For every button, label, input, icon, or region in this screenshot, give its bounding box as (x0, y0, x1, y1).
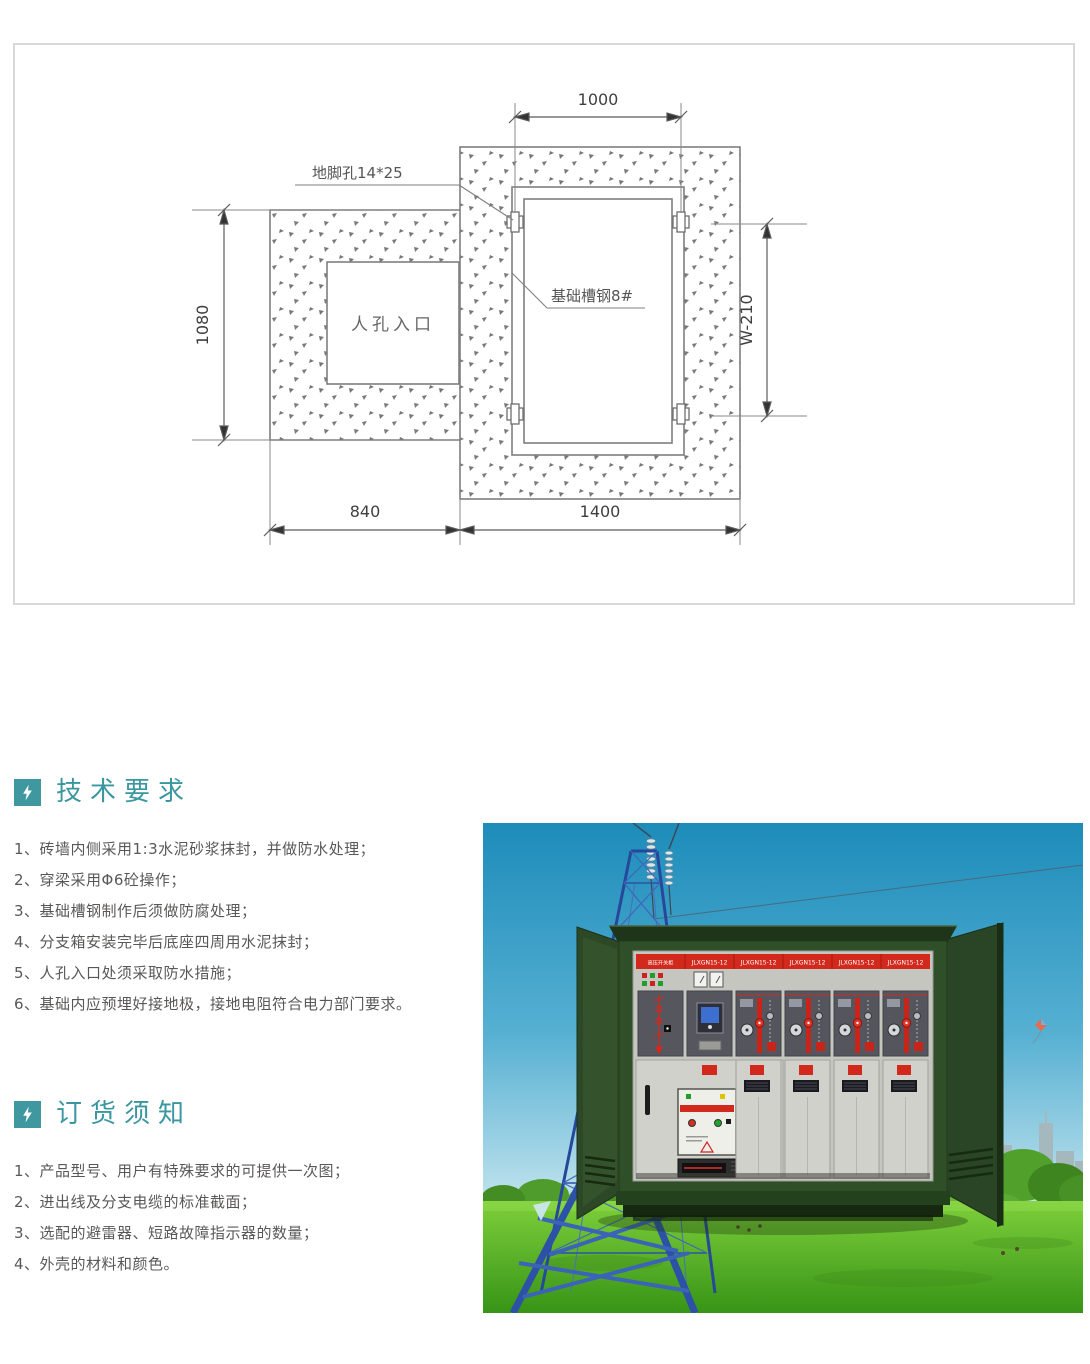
dim-top: 1000 (578, 90, 619, 109)
tech-requirements-section: 技术要求 1、砖墙内侧采用1:3水泥砂浆抹封，并做防水处理； 2、穿梁采用Φ6砼… (14, 778, 484, 1020)
cabinet-base (616, 1191, 950, 1205)
cabinet-right-door (941, 923, 1003, 1227)
panel-label: JLXGN15-12 (691, 960, 728, 967)
list-item: 2、穿梁采用Φ6砼操作； (14, 865, 484, 896)
dim-left: 1080 (193, 305, 212, 346)
list-item: 3、基础槽钢制作后须做防腐处理； (14, 896, 484, 927)
list-item: 5、人孔入口处须采取防水措施； (14, 958, 484, 989)
single-line-diagram (638, 991, 683, 1056)
list-item: 6、基础内应预埋好接地极，接地电阻符合电力部门要求。 (14, 989, 484, 1020)
foundation-plan-drawing: 1000 1080 W-210 840 1400 地脚孔14*25 基础槽钢8#… (15, 45, 1073, 603)
tech-requirements-list: 1、砖墙内侧采用1:3水泥砂浆抹封，并做防水处理； 2、穿梁采用Φ6砼操作； 3… (14, 834, 484, 1020)
dim-right: W-210 (737, 294, 756, 345)
dim-bottom-left: 840 (350, 502, 381, 521)
manhole-label: 人孔入口 (351, 315, 435, 335)
channel-steel-label: 基础槽钢8# (551, 287, 633, 305)
anchor-hole-label: 地脚孔14*25 (312, 164, 403, 182)
panel-label: JLXGN15-12 (838, 960, 875, 967)
list-item: 4、分支箱安装完毕后底座四周用水泥抹封； (14, 927, 484, 958)
cabinet-left-door (577, 927, 623, 1219)
foundation-plan-panel: 1000 1080 W-210 840 1400 地脚孔14*25 基础槽钢8#… (13, 43, 1075, 605)
panel-label: JLXGN15-12 (887, 960, 924, 967)
dim-bottom-right: 1400 (580, 502, 621, 521)
order-notes-list: 1、产品型号、用户有特殊要求的可提供一次图； 2、进出线及分支电缆的标准截面； … (14, 1156, 484, 1280)
list-item: 4、外壳的材料和颜色。 (14, 1249, 484, 1280)
panel-label: 高压开关柜 (648, 959, 674, 967)
hmi-controller (687, 991, 732, 1056)
order-section-header: 订货须知 (14, 1100, 484, 1128)
list-item: 1、产品型号、用户有特殊要求的可提供一次图； (14, 1156, 484, 1187)
relay-panel (678, 1089, 736, 1155)
list-item: 3、选配的避雷器、短路故障指示器的数量； (14, 1218, 484, 1249)
product-photo-scene: 高压开关柜 JLXGN15-12 JLXGN15-12 JLXGN15-12 J… (483, 823, 1083, 1313)
product-photo: 高压开关柜 JLXGN15-12 JLXGN15-12 JLXGN15-12 J… (483, 823, 1083, 1313)
order-notes-section: 订货须知 1、产品型号、用户有特殊要求的可提供一次图； 2、进出线及分支电缆的标… (14, 1100, 484, 1280)
list-item: 1、砖墙内侧采用1:3水泥砂浆抹封，并做防水处理； (14, 834, 484, 865)
tech-section-header: 技术要求 (14, 778, 484, 806)
anchor-bolts (507, 212, 689, 424)
panel-label: JLXGN15-12 (789, 960, 826, 967)
lightning-icon (14, 779, 41, 806)
order-section-title: 订货须知 (56, 1100, 192, 1128)
list-item: 2、进出线及分支电缆的标准截面； (14, 1187, 484, 1218)
distribution-cabinet: 高压开关柜 JLXGN15-12 JLXGN15-12 JLXGN15-12 J… (577, 923, 1003, 1227)
lightning-icon (14, 1101, 41, 1128)
panel-label: JLXGN15-12 (740, 960, 777, 967)
tech-section-title: 技术要求 (56, 778, 192, 806)
